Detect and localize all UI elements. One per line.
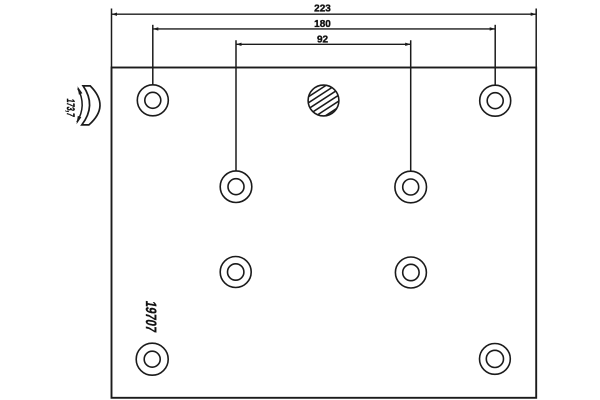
svg-text:19707: 19707 [142,300,159,334]
svg-text:92: 92 [317,35,329,46]
svg-text:180: 180 [314,19,331,30]
svg-text:223: 223 [314,4,331,15]
svg-text:173,7: 173,7 [64,98,76,118]
